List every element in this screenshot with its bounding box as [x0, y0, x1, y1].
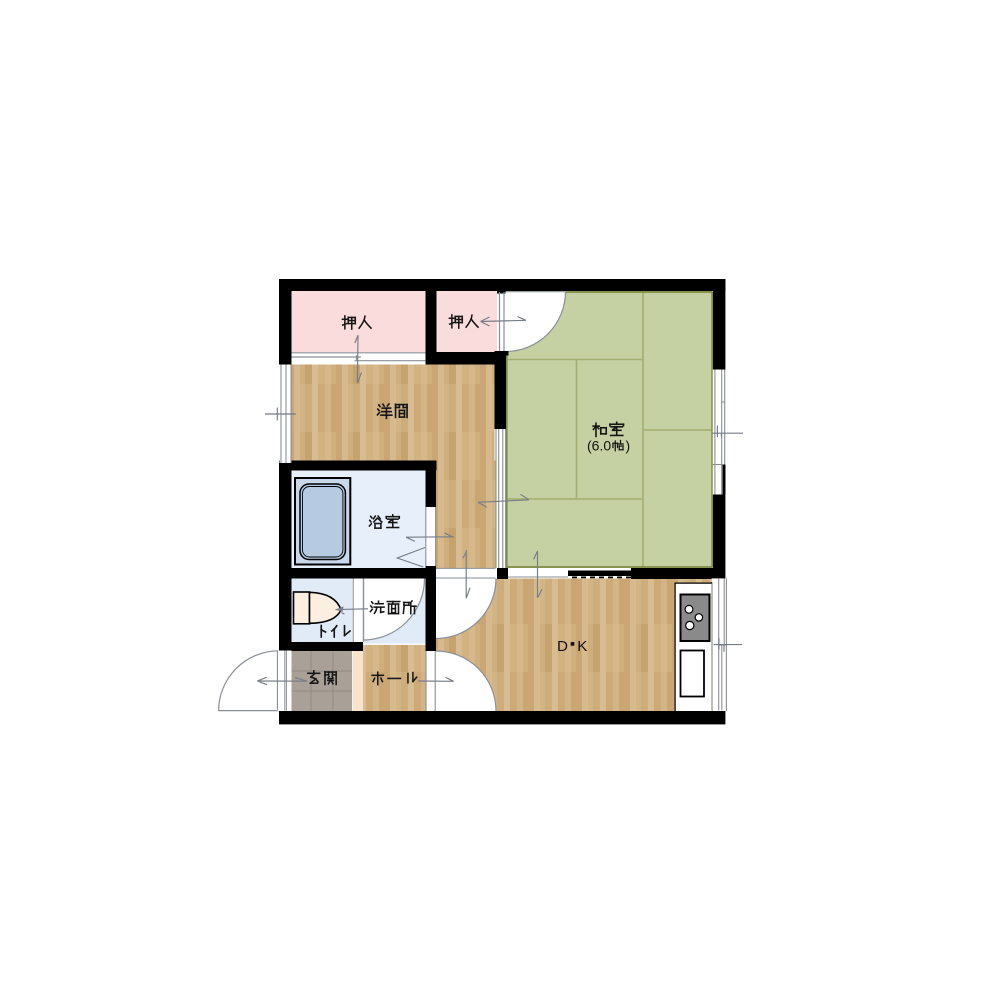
svg-text:): ) — [626, 438, 631, 454]
svg-text:D: D — [557, 638, 568, 655]
svg-text:K: K — [577, 638, 587, 655]
svg-text:(6.0: (6.0 — [587, 438, 611, 454]
